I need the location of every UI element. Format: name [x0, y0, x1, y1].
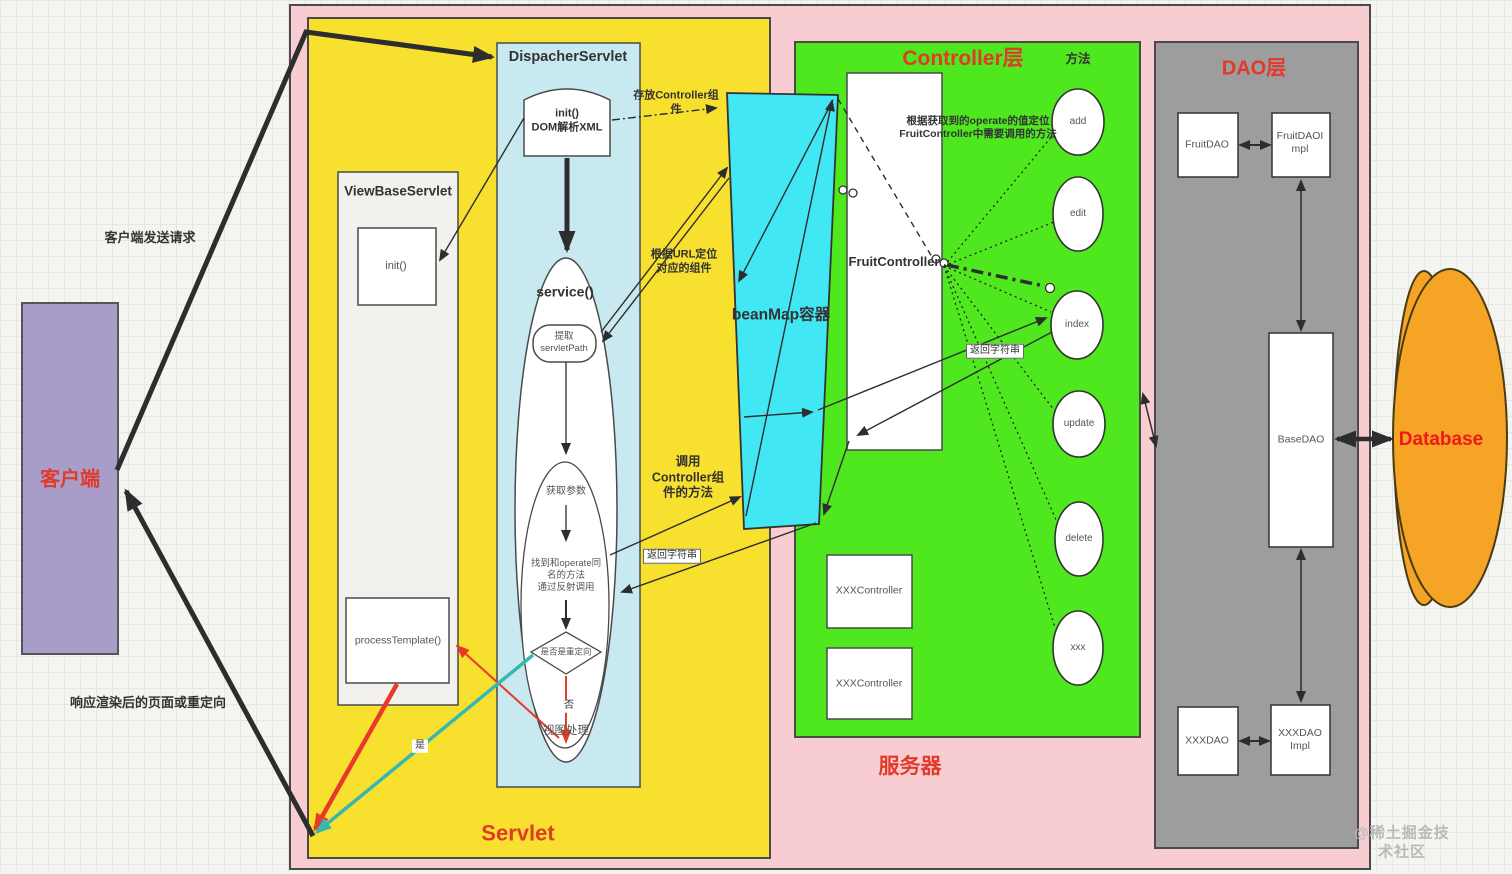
xxx-dao-box: [1178, 707, 1238, 775]
process-template-box: [346, 598, 449, 683]
method-ellipse-xxx: [1053, 611, 1103, 685]
method-ellipse-index: [1051, 291, 1103, 359]
method-ellipse-add: [1052, 89, 1104, 155]
link-node-circle: [932, 255, 940, 263]
beanmap-container: [727, 93, 838, 529]
client-box: [22, 303, 118, 654]
xxx-controller-box-2: [827, 648, 912, 719]
method-ellipse-update: [1053, 391, 1105, 457]
database-cylinder-front: [1393, 269, 1507, 607]
link-node-circle: [839, 186, 847, 194]
xxx-controller-box-1: [827, 555, 912, 628]
link-node-circle: [849, 189, 857, 197]
diagram-stage: 客户端 客户端发送请求 响应渲染后的页面或重定向 ViewBaseServlet…: [0, 0, 1512, 874]
diagram-canvas: [0, 0, 1512, 874]
fruit-dao-impl-box: [1272, 113, 1330, 177]
response-arrow: [126, 491, 313, 836]
extract-servletpath-pill: [533, 325, 596, 362]
xxx-dao-impl-box: [1271, 705, 1330, 775]
fruit-controller-box: [847, 73, 942, 450]
vbs-init-box: [358, 228, 436, 305]
init-dom-shape: [524, 89, 610, 156]
method-ellipse-delete: [1055, 502, 1103, 576]
link-node-circle: [1046, 284, 1055, 293]
fruit-dao-box: [1178, 113, 1238, 177]
base-dao-box: [1269, 333, 1333, 547]
method-ellipse-edit: [1053, 177, 1103, 251]
